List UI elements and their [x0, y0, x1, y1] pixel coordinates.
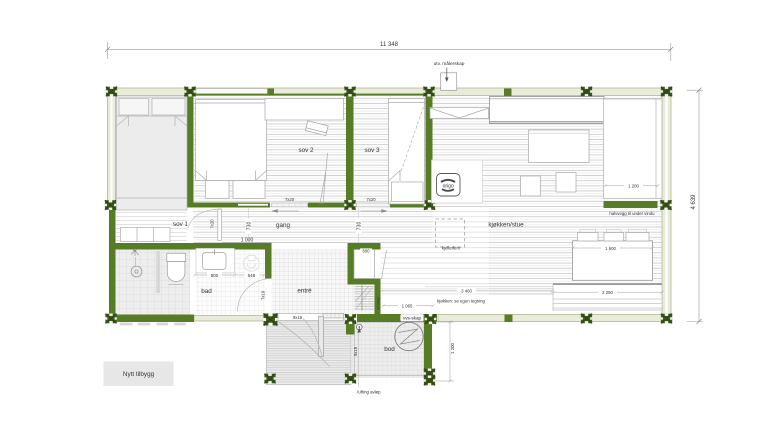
svg-text:vvs-skap: vvs-skap — [403, 316, 422, 321]
svg-text:sov 2: sov 2 — [298, 147, 314, 154]
svg-text:origo: origo — [443, 183, 454, 189]
svg-text:kjøkken: se egen tegning: kjøkken: se egen tegning — [437, 299, 485, 304]
svg-text:sov 3: sov 3 — [364, 147, 380, 154]
svg-text:utv. målerskap: utv. målerskap — [434, 60, 465, 67]
svg-text:7x20: 7x20 — [366, 197, 376, 202]
svg-text:bod: bod — [384, 346, 395, 353]
svg-text:kjellerlem: kjellerlem — [442, 245, 461, 250]
svg-text:lufting avløp: lufting avløp — [357, 389, 381, 394]
svg-text:gang: gang — [276, 222, 291, 229]
svg-text:7x20: 7x20 — [210, 219, 215, 229]
svg-text:600: 600 — [363, 248, 371, 253]
svg-text:9x19: 9x19 — [353, 346, 358, 356]
svg-text:1 200: 1 200 — [450, 343, 455, 354]
svg-text:sov 1: sov 1 — [173, 221, 189, 228]
svg-text:9x19: 9x19 — [293, 315, 303, 320]
svg-text:Nytt tilbygg: Nytt tilbygg — [123, 371, 155, 378]
svg-text:800: 800 — [211, 273, 219, 278]
svg-text:730: 730 — [246, 222, 252, 231]
svg-text:1 000: 1 000 — [241, 238, 254, 244]
svg-text:4 639: 4 639 — [691, 194, 697, 210]
svg-text:1 065: 1 065 — [402, 304, 413, 309]
svg-text:7x20: 7x20 — [285, 197, 295, 202]
svg-text:halvvegg til under vindu: halvvegg til under vindu — [609, 211, 655, 216]
svg-text:3 460: 3 460 — [461, 289, 472, 294]
svg-text:2 250: 2 250 — [602, 290, 613, 295]
svg-text:1 600: 1 600 — [605, 246, 616, 251]
svg-text:7x19: 7x19 — [261, 290, 266, 300]
svg-text:el-skap: el-skap — [375, 296, 380, 310]
svg-text:1 200: 1 200 — [628, 184, 639, 189]
svg-text:kjøkken/stue: kjøkken/stue — [488, 221, 524, 228]
svg-text:648: 648 — [248, 273, 256, 278]
svg-text:entré: entré — [297, 287, 312, 294]
svg-text:bad: bad — [201, 288, 212, 295]
svg-text:730: 730 — [356, 222, 362, 231]
svg-text:11 348: 11 348 — [380, 42, 399, 48]
